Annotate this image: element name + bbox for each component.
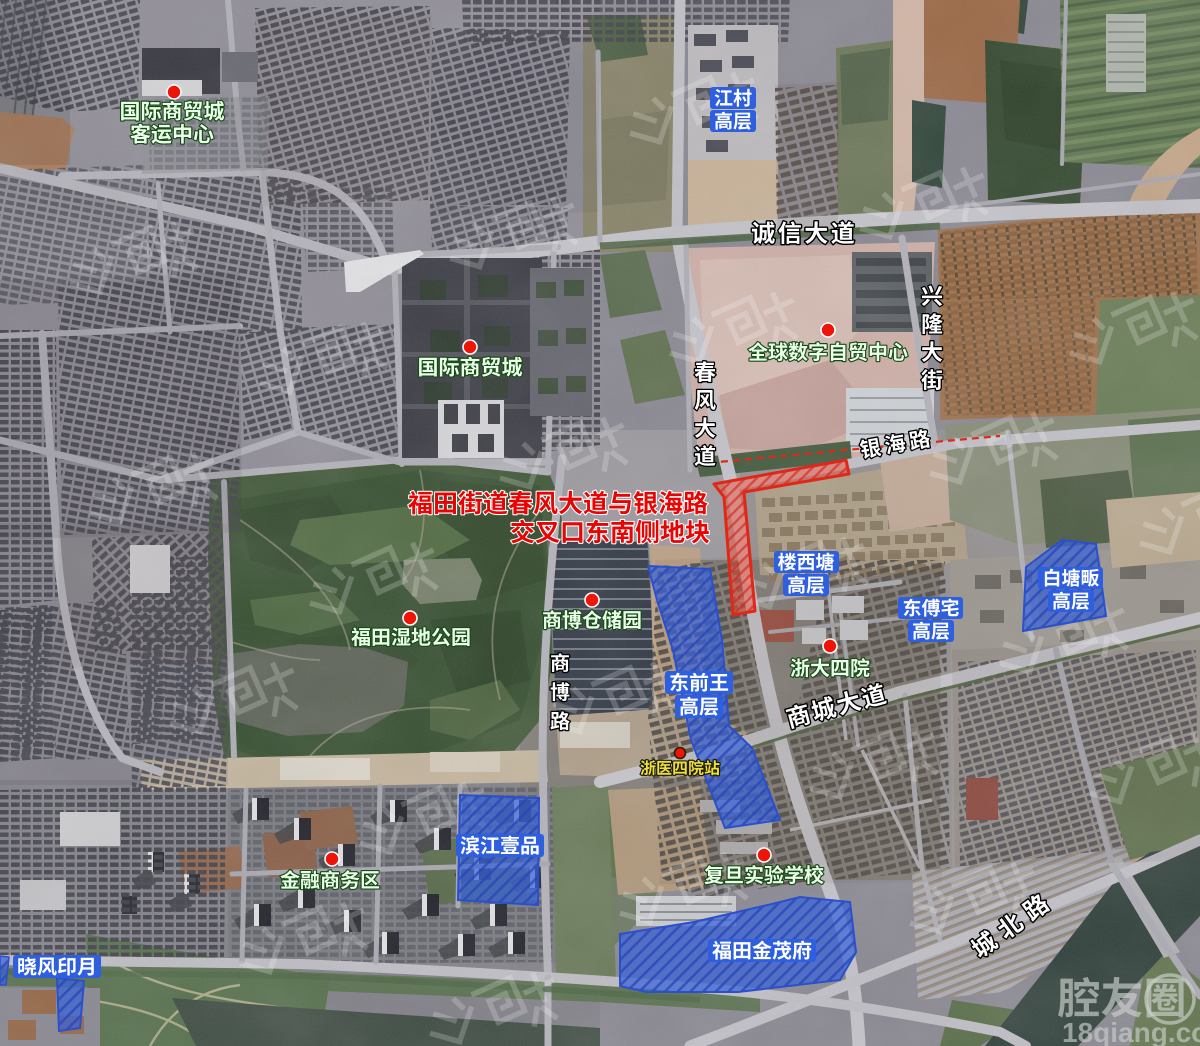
- svg-text:18qiang.com: 18qiang.com: [1062, 1017, 1200, 1046]
